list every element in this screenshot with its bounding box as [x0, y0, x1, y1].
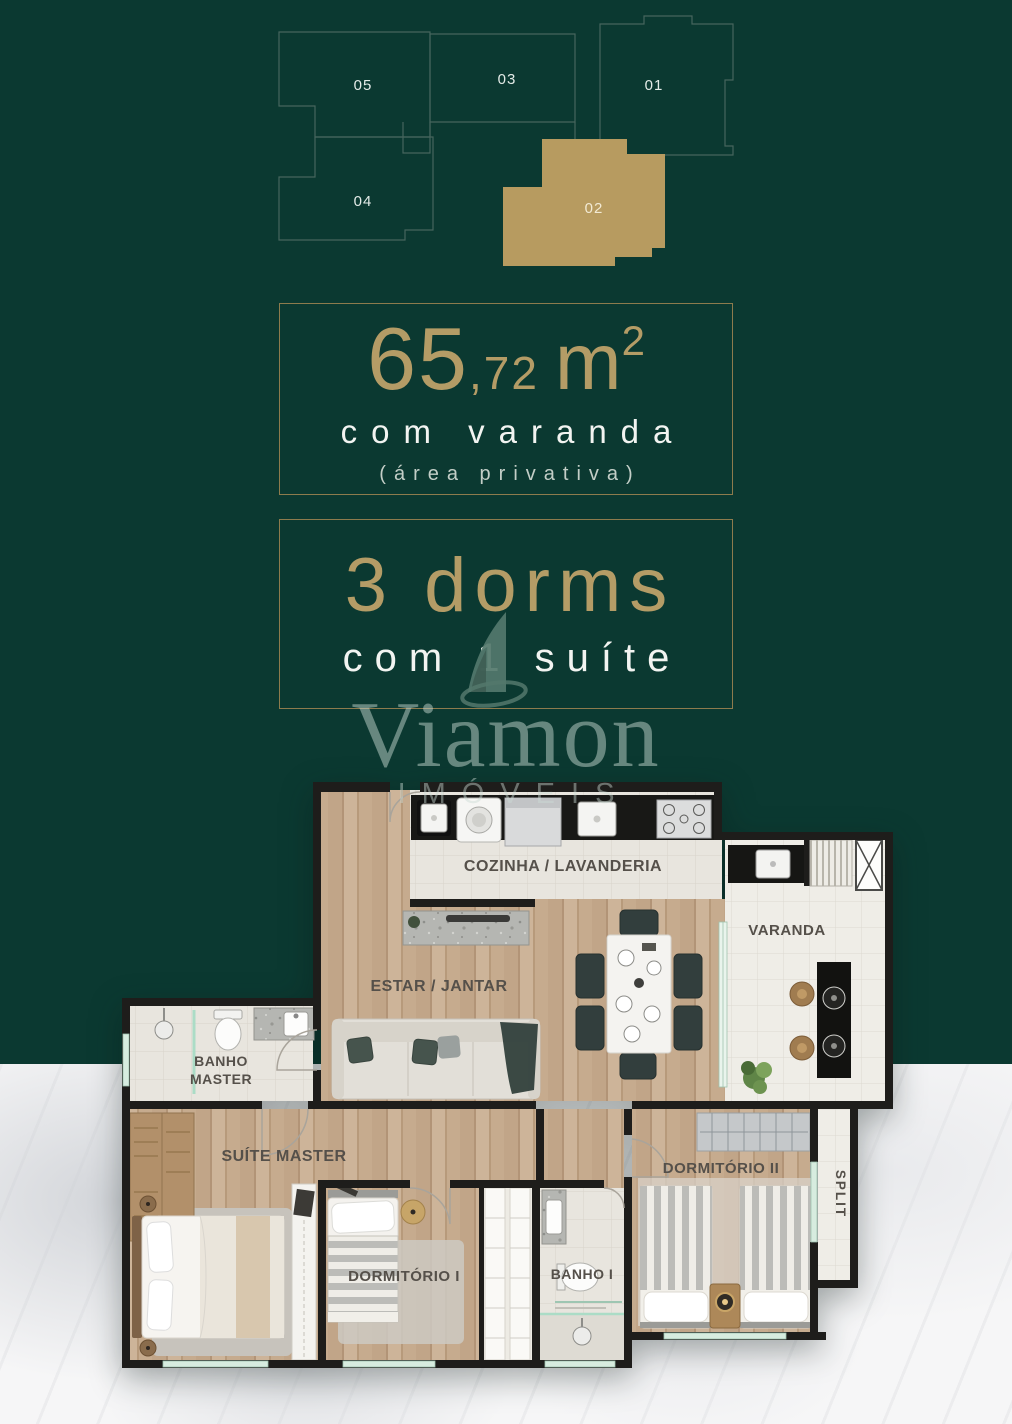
- brand-sail-icon: [460, 608, 530, 712]
- unit-03-label: 03: [498, 71, 517, 88]
- unit-01-label: 01: [645, 77, 664, 94]
- balcony-sink-icon: [770, 861, 776, 867]
- area-unit: m2: [555, 322, 645, 402]
- unit-04-label: 04: [354, 193, 373, 210]
- floor-plan: COZINHA / LAVANDERIA ESTAR / JANTAR VARA…: [108, 772, 900, 1378]
- room-label-master-bath-1: BANHO: [194, 1053, 248, 1069]
- room-label-living: ESTAR / JANTAR: [370, 978, 507, 995]
- shower-icon: [155, 1021, 173, 1039]
- room-label-bath1: BANHO I: [551, 1266, 614, 1282]
- room-label-master-suite: SUÍTE MASTER: [221, 1146, 346, 1165]
- area-decimal: ,72: [469, 350, 539, 396]
- area-note: (área privativa): [371, 463, 640, 486]
- room-label-bedroom2: DORMITÓRIO II: [663, 1159, 780, 1177]
- room-label-balcony: VARANDA: [748, 922, 825, 939]
- sink-icon: [431, 815, 437, 821]
- shower-icon: [573, 1327, 591, 1345]
- area-unit-exponent: 2: [622, 317, 645, 364]
- area-box: 65,72 m2 com varanda (área privativa): [279, 303, 733, 495]
- unit-01-outline: [600, 16, 733, 155]
- unit-05-label: 05: [354, 77, 373, 94]
- room-label-kitchen: COZINHA / LAVANDERIA: [464, 858, 662, 875]
- toilet-icon: [215, 1018, 241, 1050]
- area-value-line: 65,72 m2: [367, 315, 645, 403]
- real-estate-flyer: 05 03 01 04 02 65,72 m2 com varanda (áre…: [0, 0, 1012, 1424]
- unit-02-label: 02: [585, 200, 604, 217]
- room-label-split: SPLIT: [833, 1170, 848, 1218]
- area-value: 65: [367, 315, 469, 403]
- bath1-sink-icon: [546, 1200, 562, 1234]
- area-subtitle: com varanda: [327, 413, 686, 451]
- room-label-master-bath-2: MASTER: [190, 1071, 252, 1087]
- drying-area: [810, 840, 852, 886]
- sofa: [332, 1019, 540, 1099]
- grill-counter: [817, 962, 851, 1078]
- room-label-bedroom1: DORMITÓRIO I: [348, 1267, 460, 1285]
- building-keyplan: 05 03 01 04 02: [270, 8, 745, 274]
